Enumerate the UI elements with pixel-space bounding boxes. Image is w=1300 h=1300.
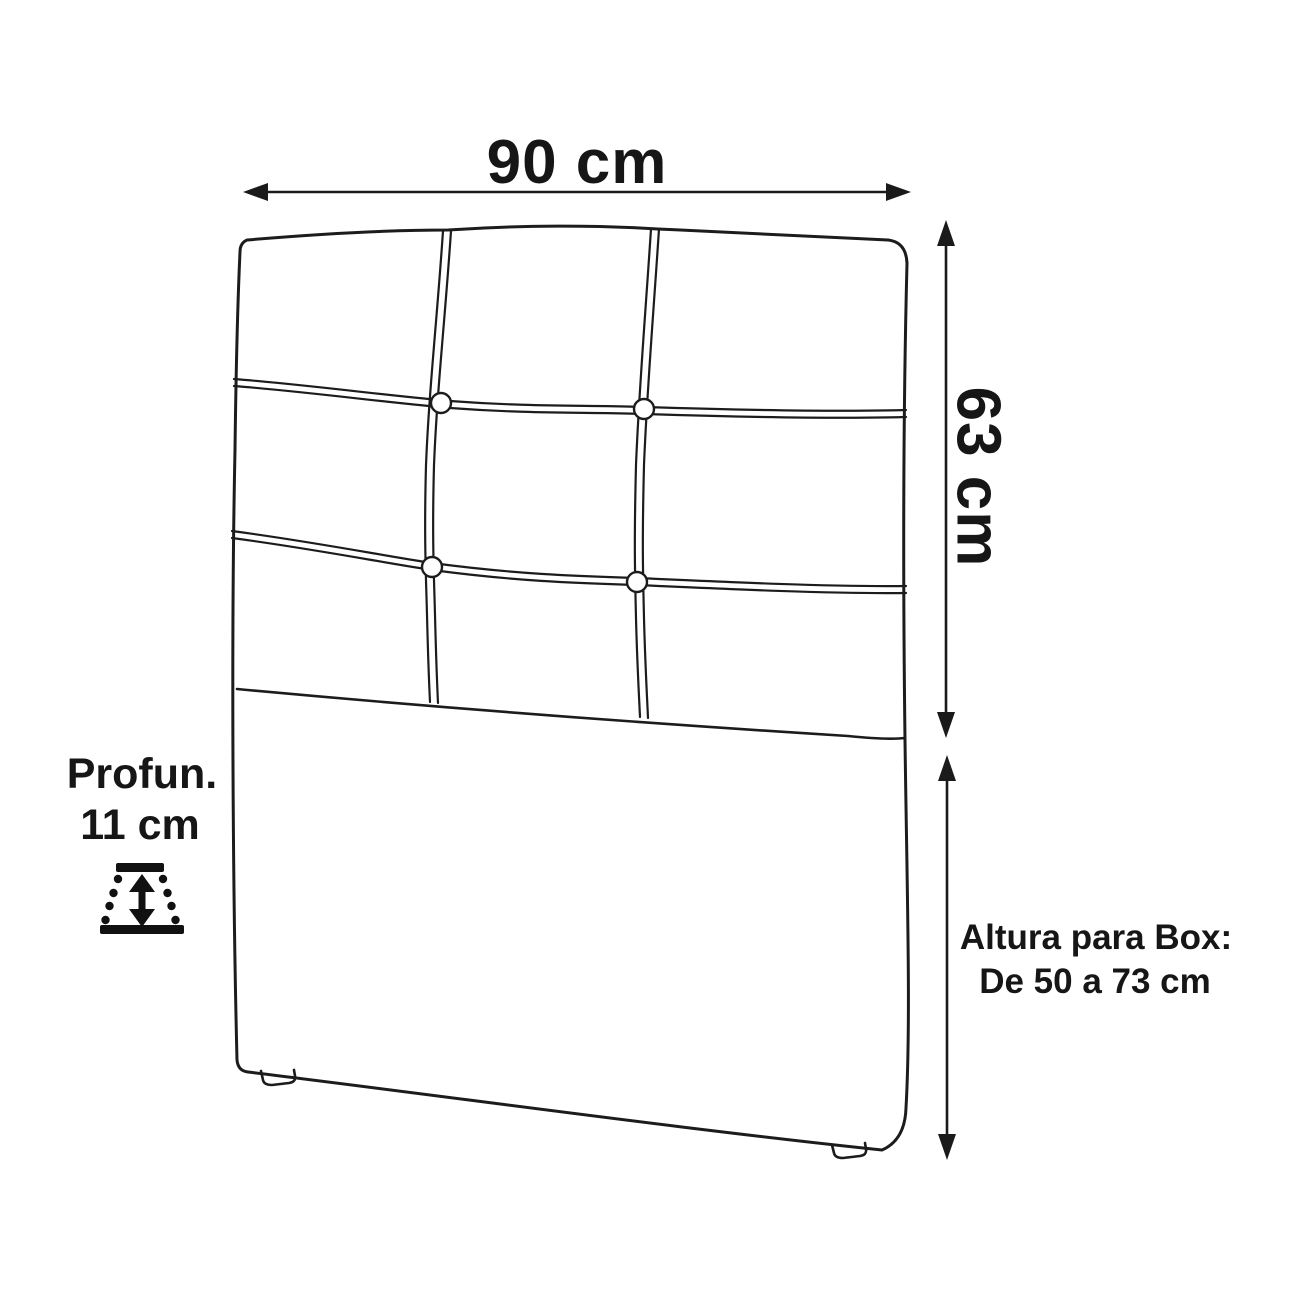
depth-arrow-up-icon	[129, 874, 155, 892]
depth-icon	[100, 863, 184, 934]
tufting-button	[634, 399, 654, 419]
tufting-button	[627, 572, 647, 592]
tufting-button	[422, 557, 442, 577]
arrowhead-up-icon	[937, 220, 955, 246]
depth-dimension: Profun. 11 cm	[67, 750, 217, 934]
arrowhead-down-icon	[938, 1134, 956, 1160]
arrowhead-left-icon	[243, 183, 268, 201]
headboard-drawing	[232, 226, 908, 1158]
height-label: 63 cm	[944, 387, 1013, 568]
box-height-dimension: Altura para Box: De 50 a 73 cm	[938, 755, 1232, 1160]
depth-label-line1: Profun.	[67, 750, 217, 798]
box-height-label-line2: De 50 a 73 cm	[979, 962, 1211, 1001]
width-dimension: 90 cm	[243, 128, 911, 201]
diagram-svg: 90 cm 63 cm Altura para Box: De 50 a 73 …	[0, 0, 1300, 1300]
headboard-dimension-diagram: 90 cm 63 cm Altura para Box: De 50 a 73 …	[0, 0, 1300, 1300]
tufting-button	[431, 393, 451, 413]
headboard-outline	[233, 226, 909, 1150]
box-height-label-line1: Altura para Box:	[960, 918, 1232, 957]
depth-arrow-down-icon	[129, 909, 155, 927]
height-dimension: 63 cm	[937, 220, 1013, 738]
arrowhead-right-icon	[886, 183, 911, 201]
arrowhead-down-icon	[937, 712, 955, 738]
width-label: 90 cm	[487, 128, 668, 197]
arrowhead-up-icon	[938, 755, 956, 781]
depth-label-line2: 11 cm	[80, 801, 200, 849]
